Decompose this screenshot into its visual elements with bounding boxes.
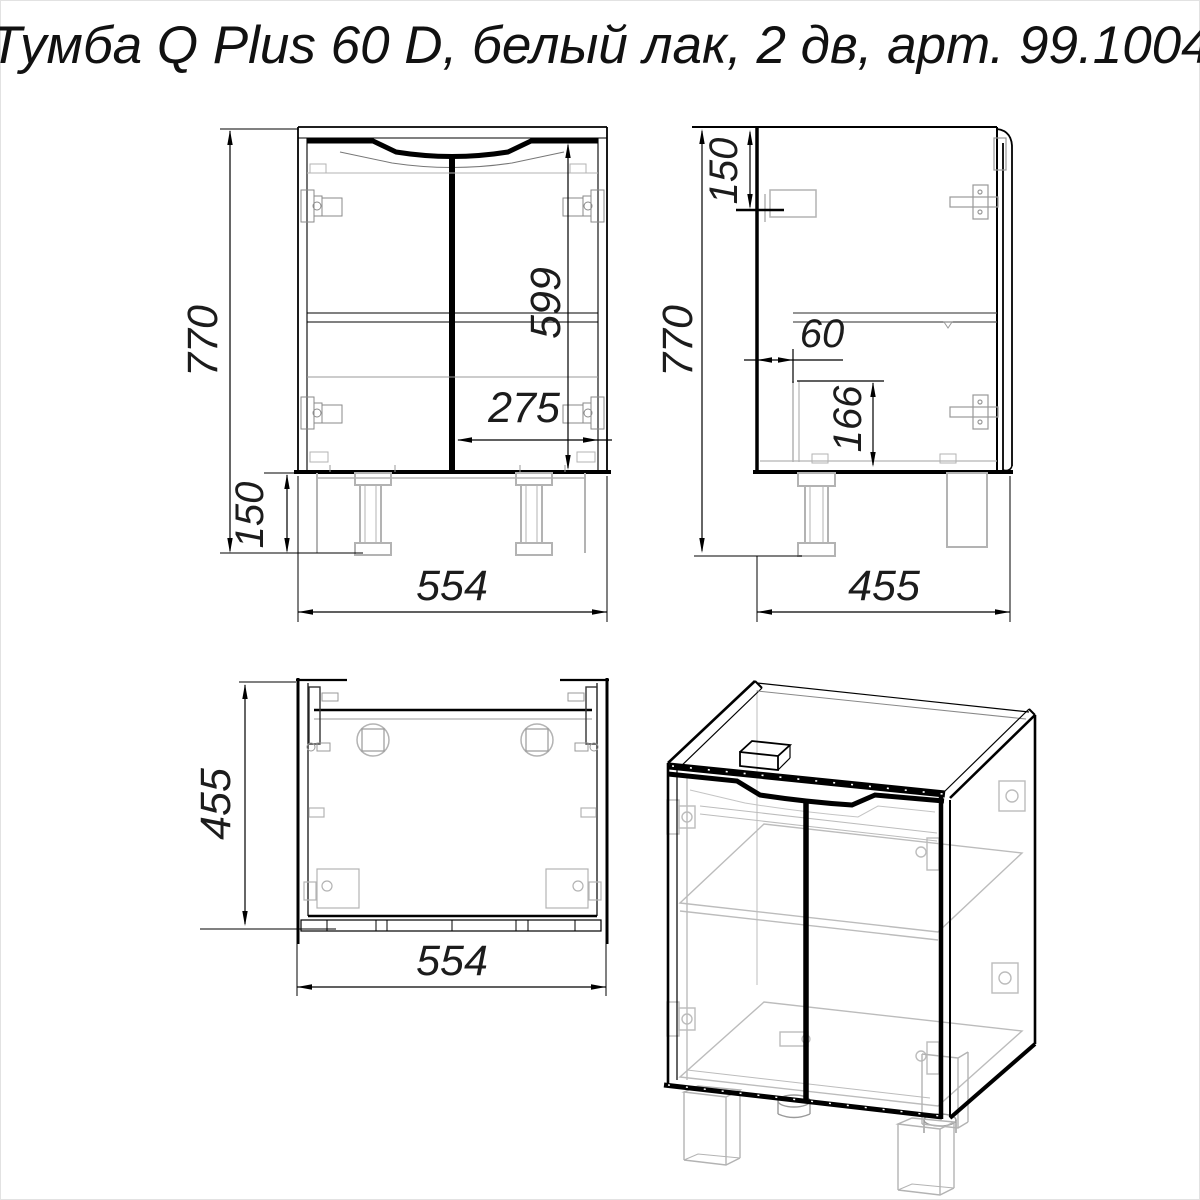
dim-front-overall-height: 770 bbox=[179, 305, 227, 377]
sheet-border bbox=[1, 1, 1200, 1200]
dim-top-width: 554 bbox=[416, 937, 488, 985]
dim-front-door-height: 599 bbox=[522, 267, 570, 339]
dim-front-leg-height: 150 bbox=[228, 482, 272, 549]
dim-side-bracket-offset: 150 bbox=[702, 138, 746, 205]
dim-top-depth: 455 bbox=[192, 767, 240, 840]
dim-side-siphon-offset: 60 bbox=[800, 312, 845, 356]
dim-side-overall-depth: 455 bbox=[848, 562, 921, 610]
drawing-title: Тумба Q Plus 60 D, белый лак, 2 дв, арт.… bbox=[0, 16, 1200, 75]
technical-drawing: Тумба Q Plus 60 D, белый лак, 2 дв, арт.… bbox=[0, 0, 1200, 1200]
dim-front-door-width: 275 bbox=[487, 384, 561, 432]
dim-front-overall-width: 554 bbox=[416, 562, 488, 610]
dim-side-overall-height: 770 bbox=[654, 305, 702, 377]
dim-side-siphon-height: 166 bbox=[826, 385, 870, 452]
drawing-sheet: Тумба Q Plus 60 D, белый лак, 2 дв, арт.… bbox=[0, 0, 1200, 1200]
